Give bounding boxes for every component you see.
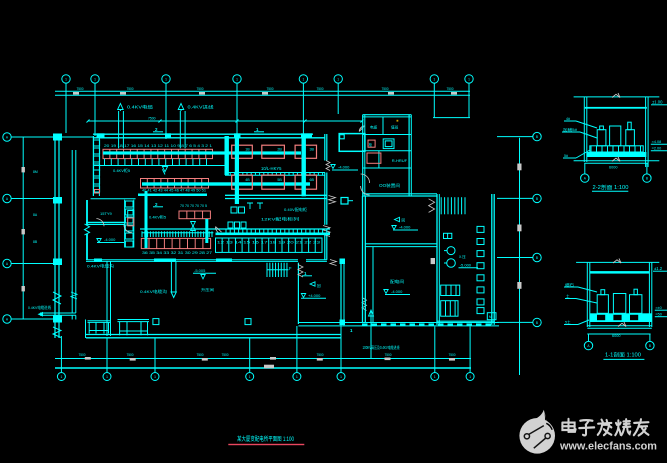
svg-text:配电间: 配电间 — [390, 278, 404, 285]
svg-text:1: 1 — [249, 375, 251, 379]
svg-text:7500: 7500 — [448, 353, 455, 357]
svg-text:www.elecfans.com: www.elecfans.com — [559, 440, 657, 452]
svg-text:1: 1 — [154, 375, 156, 379]
svg-text:7500: 7500 — [221, 353, 228, 357]
svg-text:7500: 7500 — [316, 353, 323, 357]
svg-text:-4.000: -4.000 — [399, 225, 411, 230]
svg-text:70 70 70 70 70 5: 70 70 70 70 70 5 — [180, 204, 207, 208]
svg-text:-4.000: -4.000 — [104, 237, 116, 242]
svg-text:15TY9: 15TY9 — [100, 211, 113, 216]
svg-text:OO装置间: OO装置间 — [379, 182, 400, 189]
svg-text:+4.000: +4.000 — [308, 293, 321, 298]
svg-text:7500: 7500 — [126, 87, 133, 91]
svg-text:6000: 6000 — [609, 166, 617, 170]
svg-text:7500: 7500 — [148, 117, 156, 121]
svg-text:B: B — [536, 135, 538, 139]
svg-text:3B: 3B — [310, 148, 315, 152]
svg-text:8A: 8A — [33, 213, 38, 217]
svg-text:1: 1 — [236, 78, 238, 82]
svg-text:1: 1 — [106, 375, 108, 379]
svg-text:±1.2: ±1.2 — [654, 266, 663, 271]
svg-text:1: 1 — [303, 78, 305, 82]
svg-text:12 13 14 15 16 17 18 19 20 21: 12 13 14 15 16 17 18 19 20 21 22 23 — [217, 241, 320, 245]
svg-text:0.4KV柜5: 0.4KV柜5 — [113, 167, 131, 173]
svg-text:0.4KV电缆进线: 0.4KV电缆进线 — [28, 305, 51, 310]
svg-text:1: 1 — [433, 78, 435, 82]
svg-text:1: 1 — [65, 78, 67, 82]
svg-text:1: 1 — [468, 78, 470, 82]
svg-text:7500: 7500 — [446, 87, 453, 91]
svg-text:1: 1 — [340, 375, 342, 379]
svg-text:7500: 7500 — [266, 87, 273, 91]
svg-text:4#: 4# — [566, 117, 570, 121]
svg-text:40 41 42 43 44 45 46 47 48 49: 40 41 42 43 44 45 46 47 48 49 50 51 — [142, 188, 206, 192]
svg-text:7500: 7500 — [76, 87, 83, 91]
svg-text:电缆: 电缆 — [370, 125, 378, 130]
svg-text:7500: 7500 — [384, 353, 391, 357]
svg-text:0.4KV柜5: 0.4KV柜5 — [149, 214, 167, 220]
svg-text:回: 回 — [402, 218, 406, 223]
svg-text:土: 土 — [566, 294, 570, 299]
svg-text:1: 1 — [165, 78, 167, 82]
svg-text:B: B — [646, 177, 648, 181]
svg-text:0.4KV电缆沟: 0.4KV电缆沟 — [140, 288, 167, 294]
svg-text:≈±0: ≈±0 — [656, 306, 662, 310]
svg-text:7500: 7500 — [196, 353, 203, 357]
svg-text:-4.000: -4.000 — [338, 165, 350, 170]
svg-text:加辅5#: 加辅5# — [563, 127, 577, 132]
svg-text:10/L-HKY5: 10/L-HKY5 — [261, 166, 282, 171]
svg-text:1: 1 — [61, 375, 63, 379]
svg-text:1B: 1B — [245, 148, 250, 152]
svg-text:36 35 34 33 32 31 30 29 28 27: 36 35 34 33 32 31 30 29 28 27 — [142, 251, 212, 255]
svg-text:7500: 7500 — [126, 353, 133, 357]
svg-text:8M: 8M — [33, 170, 38, 174]
svg-text:B: B — [649, 344, 651, 348]
svg-text:7500: 7500 — [381, 87, 388, 91]
svg-text:6000: 6000 — [612, 334, 620, 338]
svg-text:0.4KV电缆: 0.4KV电缆 — [127, 104, 154, 111]
svg-text:6B: 6B — [310, 178, 315, 182]
svg-text:≈4.08: ≈4.08 — [652, 140, 661, 144]
svg-text:2-2剖面 1:100: 2-2剖面 1:100 — [593, 184, 629, 191]
svg-text:-5.000: -5.000 — [460, 263, 472, 268]
svg-text:7500: 7500 — [78, 353, 85, 357]
svg-text:7500: 7500 — [316, 87, 323, 91]
svg-text:1: 1 — [469, 375, 471, 379]
svg-text:1: 1 — [337, 78, 339, 82]
svg-text:12KV配电柜列: 12KV配电柜列 — [261, 216, 299, 222]
svg-text:1: 1 — [296, 375, 298, 379]
svg-text:4B: 4B — [245, 178, 250, 182]
svg-text:0.4KV电缆沟: 0.4KV电缆沟 — [87, 263, 114, 269]
svg-text:-4.000: -4.000 — [391, 289, 403, 294]
svg-text:F: F — [289, 266, 292, 271]
svg-text:B: B — [536, 321, 538, 325]
svg-text:细石: 细石 — [565, 282, 575, 287]
svg-text:升压间: 升压间 — [201, 287, 214, 292]
svg-text:1: 1 — [434, 375, 436, 379]
svg-text:5土: 5土 — [565, 320, 571, 325]
svg-text:某大厦变配电所平面图 1:100: 某大厦变配电所平面图 1:100 — [237, 435, 294, 443]
svg-text:0.40V配电柜: 0.40V配电柜 — [284, 206, 307, 212]
svg-text:5B: 5B — [277, 178, 282, 182]
svg-text:B: B — [536, 197, 538, 201]
svg-text:X.压: X.压 — [459, 255, 466, 259]
svg-text:20 19 18 17 16 15 14 13 12 11: 20 19 18 17 16 15 14 13 12 11 10 9 8 7 6… — [104, 144, 212, 148]
svg-text:5#: 5# — [564, 154, 568, 158]
svg-text:±1.00: ±1.00 — [652, 100, 663, 105]
svg-text:-5.005: -5.005 — [194, 268, 206, 273]
svg-text:M: M — [489, 315, 492, 319]
svg-text:R-HRUF: R-HRUF — [392, 158, 408, 163]
svg-text:≈2.00: ≈2.00 — [652, 147, 661, 151]
svg-text:值班: 值班 — [391, 125, 399, 130]
svg-text:100KV高压及0.4KV电缆进线: 100KV高压及0.4KV电缆进线 — [363, 344, 401, 351]
svg-text:1: 1 — [94, 78, 96, 82]
svg-text:0.4KV进线: 0.4KV进线 — [188, 104, 215, 111]
svg-text:2B: 2B — [277, 148, 282, 152]
svg-text:B: B — [536, 256, 538, 260]
svg-text:回: 回 — [317, 283, 321, 288]
svg-text:7500: 7500 — [196, 87, 203, 91]
svg-text:1-1剖面 1:100: 1-1剖面 1:100 — [605, 352, 641, 359]
svg-text:≈50: ≈50 — [656, 313, 662, 317]
svg-text:8B: 8B — [33, 240, 38, 244]
